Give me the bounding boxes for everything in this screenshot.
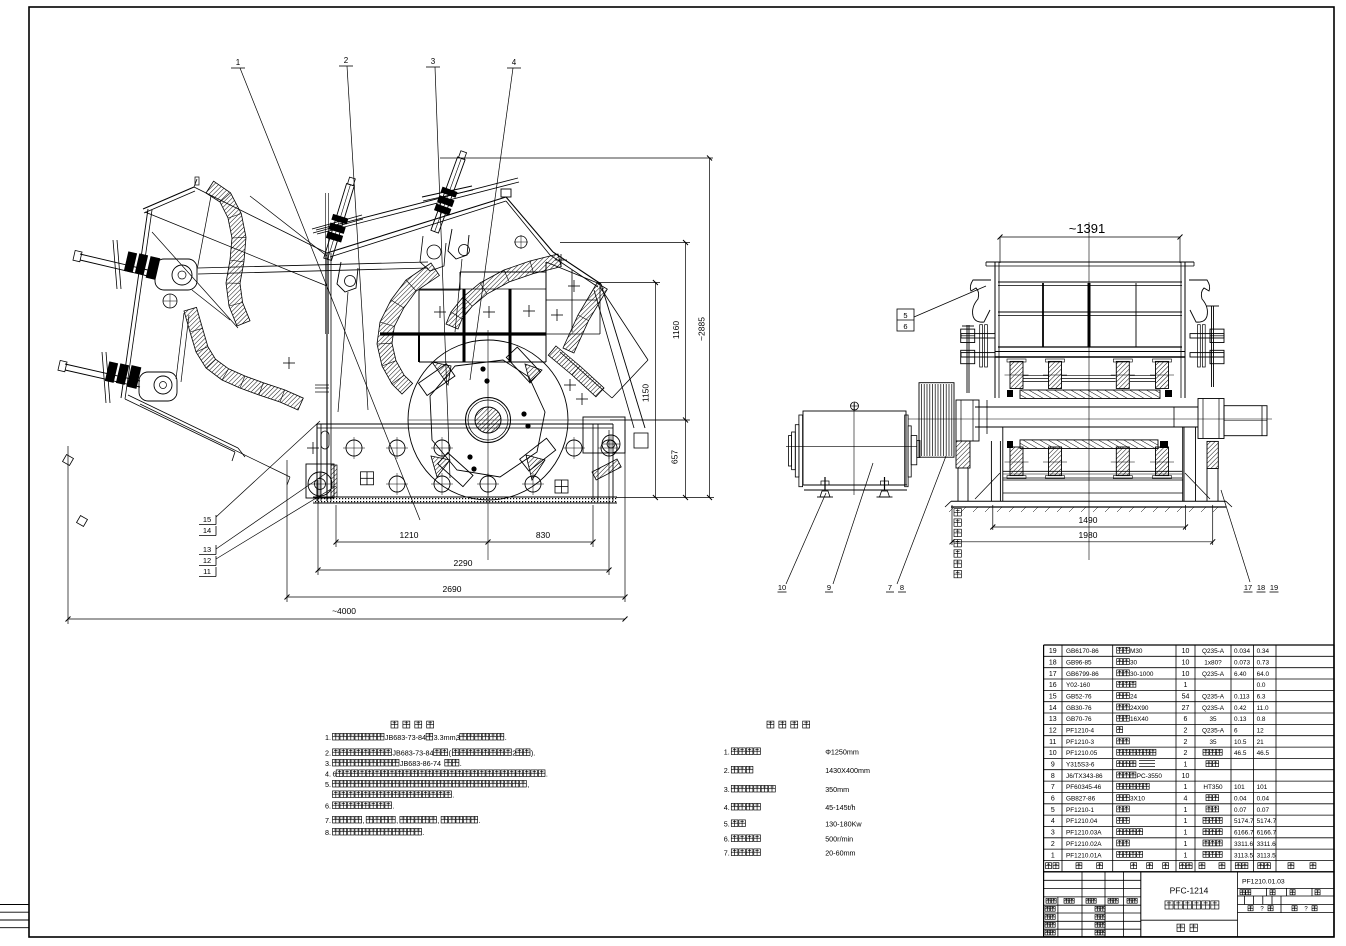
svg-text:500r/min: 500r/min: [825, 835, 853, 844]
svg-text:1: 1: [1184, 807, 1188, 814]
svg-text:19: 19: [1270, 583, 1278, 592]
svg-text:0.07: 0.07: [1257, 807, 1270, 814]
svg-text:2290: 2290: [454, 558, 473, 568]
svg-text:Q235-A: Q235-A: [1202, 648, 1225, 655]
svg-text:16X40: 16X40: [1130, 716, 1149, 723]
svg-text:Q235-A: Q235-A: [1202, 728, 1225, 735]
svg-text:1150: 1150: [641, 384, 651, 403]
svg-text:130-180Kw: 130-180Kw: [825, 820, 862, 829]
svg-text:PF1210.04: PF1210.04: [1066, 818, 1098, 825]
svg-text:,: ,: [527, 780, 529, 789]
svg-text:1430X400mm: 1430X400mm: [825, 766, 870, 775]
svg-text:45-145t/h: 45-145t/h: [825, 803, 855, 812]
svg-text:3311.6: 3311.6: [1234, 841, 1254, 848]
svg-text:5174.7: 5174.7: [1234, 818, 1254, 825]
svg-text:PF1210.03A: PF1210.03A: [1066, 830, 1102, 837]
svg-text:101: 101: [1257, 784, 1268, 791]
svg-text:0.073: 0.073: [1234, 660, 1250, 667]
svg-text:10.5: 10.5: [1234, 739, 1247, 746]
svg-text:8: 8: [1051, 773, 1055, 780]
svg-text:1: 1: [1184, 762, 1188, 769]
svg-text:7.: 7.: [325, 816, 331, 825]
svg-text:14: 14: [1049, 705, 1057, 712]
svg-text:GB6799-86: GB6799-86: [1066, 671, 1099, 678]
svg-text:Y02-160: Y02-160: [1066, 682, 1091, 689]
svg-text:64.0: 64.0: [1257, 671, 1270, 678]
svg-text:2690: 2690: [443, 584, 462, 594]
svg-text:0.04: 0.04: [1234, 796, 1247, 803]
svg-text:15: 15: [1049, 694, 1057, 701]
svg-text:830: 830: [536, 530, 550, 540]
svg-text:1: 1: [1184, 784, 1188, 791]
svg-text:10: 10: [778, 583, 786, 592]
svg-text:5174.7: 5174.7: [1257, 818, 1277, 825]
svg-text:2.: 2.: [325, 749, 331, 758]
svg-text:PF1210-4: PF1210-4: [1066, 728, 1095, 735]
svg-text:3X10: 3X10: [1130, 796, 1145, 803]
svg-text:2: 2: [344, 56, 349, 65]
svg-text:6.: 6.: [724, 835, 730, 844]
svg-text:46.5: 46.5: [1257, 750, 1270, 757]
svg-text:JB683-73-84: JB683-73-84: [385, 733, 426, 742]
svg-text:PF1210.01.03: PF1210.01.03: [1242, 879, 1285, 886]
svg-text:3.: 3.: [724, 785, 730, 794]
svg-text:0.73: 0.73: [1257, 660, 1270, 667]
svg-text:54: 54: [1182, 694, 1190, 701]
svg-text:1: 1: [1184, 852, 1188, 859]
svg-text:4: 4: [512, 58, 517, 67]
svg-text:0.0: 0.0: [1257, 682, 1266, 689]
svg-text:1490: 1490: [1079, 515, 1098, 525]
svg-text:PF1210-1: PF1210-1: [1066, 807, 1095, 814]
svg-text:14: 14: [203, 526, 211, 535]
svg-text:0.07: 0.07: [1234, 807, 1247, 814]
svg-text:101: 101: [1234, 784, 1245, 791]
svg-text:3: 3: [1051, 830, 1055, 837]
svg-text:PF60345-46: PF60345-46: [1066, 784, 1102, 791]
svg-text:6166.7: 6166.7: [1234, 830, 1254, 837]
svg-text:1: 1: [236, 58, 241, 67]
svg-text:4: 4: [1051, 818, 1055, 825]
svg-text:657: 657: [670, 450, 680, 464]
svg-text:2: 2: [1184, 728, 1188, 735]
svg-text:,: ,: [437, 816, 439, 825]
svg-text:4.: 4.: [325, 770, 331, 779]
svg-text:27: 27: [1182, 705, 1190, 712]
svg-text:1: 1: [1184, 841, 1188, 848]
svg-text:1: 1: [1184, 830, 1188, 837]
svg-text:1: 1: [1184, 682, 1188, 689]
svg-text:46.5: 46.5: [1234, 750, 1247, 757]
svg-text:6.40: 6.40: [1234, 671, 1247, 678]
svg-text:5: 5: [1051, 807, 1055, 814]
svg-text:2: 2: [1184, 739, 1188, 746]
svg-text:4.: 4.: [724, 803, 730, 812]
svg-text:0.42: 0.42: [1234, 705, 1247, 712]
svg-text:1x80?: 1x80?: [1204, 660, 1222, 667]
svg-text:GB827-86: GB827-86: [1066, 796, 1096, 803]
svg-text:7: 7: [1051, 784, 1055, 791]
svg-text:6: 6: [1184, 716, 1188, 723]
svg-text:3: 3: [456, 733, 460, 742]
svg-text:).: ).: [531, 749, 535, 758]
svg-text:1160: 1160: [671, 321, 681, 340]
svg-text:24X90: 24X90: [1130, 705, 1149, 712]
svg-text:16: 16: [1049, 682, 1057, 689]
svg-text:PF1210.05: PF1210.05: [1066, 750, 1098, 757]
svg-text:1: 1: [1184, 818, 1188, 825]
svg-text:11: 11: [203, 567, 211, 576]
svg-text:Y315S3-6: Y315S3-6: [1066, 762, 1095, 769]
svg-text:~2885: ~2885: [697, 317, 707, 341]
svg-text:5: 5: [903, 311, 907, 320]
svg-text:6: 6: [1051, 796, 1055, 803]
svg-text:10: 10: [1182, 773, 1190, 780]
svg-text:10: 10: [1182, 660, 1190, 667]
svg-text:PC-3550: PC-3550: [1137, 773, 1163, 780]
svg-text:JB683-86-74: JB683-86-74: [400, 759, 441, 768]
svg-text:PF1210.02A: PF1210.02A: [1066, 841, 1102, 848]
svg-text:.: .: [392, 802, 394, 811]
svg-text:Φ1250mm: Φ1250mm: [825, 748, 859, 757]
svg-text:1980: 1980: [1079, 530, 1098, 540]
svg-text:8.: 8.: [325, 828, 331, 837]
svg-text:7.: 7.: [724, 849, 730, 858]
svg-text:J6/TX343-86: J6/TX343-86: [1066, 773, 1103, 780]
svg-text:30-1000: 30-1000: [1130, 671, 1154, 678]
svg-text:10: 10: [1182, 648, 1190, 655]
svg-text:0.113: 0.113: [1234, 694, 1250, 701]
svg-text:.: .: [460, 759, 462, 768]
svg-text:1210: 1210: [400, 530, 419, 540]
svg-text:18: 18: [1257, 583, 1265, 592]
svg-text:3.: 3.: [325, 759, 331, 768]
svg-text:6.: 6.: [325, 802, 331, 811]
svg-text:GB6170-86: GB6170-86: [1066, 648, 1099, 655]
svg-text:0.13: 0.13: [1234, 716, 1247, 723]
svg-text:.: .: [452, 791, 454, 800]
svg-text:17: 17: [1049, 671, 1057, 678]
svg-text:2: 2: [1184, 750, 1188, 757]
svg-text:3311.6: 3311.6: [1257, 841, 1277, 848]
svg-text:0.8: 0.8: [1257, 716, 1266, 723]
svg-text:GB70-76: GB70-76: [1066, 716, 1092, 723]
svg-text:35: 35: [1209, 716, 1217, 723]
svg-text:PF1210.01A: PF1210.01A: [1066, 852, 1102, 859]
svg-text:3: 3: [431, 57, 436, 66]
svg-text:~1391: ~1391: [1069, 221, 1106, 236]
svg-text:6.3: 6.3: [1257, 694, 1266, 701]
svg-text:Q235-A: Q235-A: [1202, 705, 1225, 712]
svg-text:~4000: ~4000: [332, 606, 356, 616]
svg-text:Q235-A: Q235-A: [1202, 694, 1225, 701]
svg-text:2: 2: [1051, 841, 1055, 848]
svg-text:12: 12: [203, 556, 211, 565]
svg-text:18: 18: [1049, 660, 1057, 667]
svg-text:35: 35: [1209, 739, 1217, 746]
svg-text:13: 13: [1049, 716, 1057, 723]
svg-text:GB30-76: GB30-76: [1066, 705, 1092, 712]
svg-text:12: 12: [1049, 728, 1057, 735]
svg-text:0.34: 0.34: [1257, 648, 1270, 655]
svg-text:3.3mm,: 3.3mm,: [434, 733, 458, 742]
svg-text:4: 4: [1184, 796, 1188, 803]
svg-text:.: .: [505, 733, 507, 742]
svg-text:12: 12: [1257, 728, 1265, 735]
svg-text:.: .: [422, 828, 424, 837]
svg-text:6166.7: 6166.7: [1257, 830, 1277, 837]
svg-text:13: 13: [203, 545, 211, 554]
svg-text:0.034: 0.034: [1234, 648, 1250, 655]
svg-text:24: 24: [1130, 694, 1138, 701]
svg-text:19: 19: [1049, 648, 1057, 655]
svg-text:1.: 1.: [325, 733, 331, 742]
svg-text:17: 17: [1244, 583, 1252, 592]
svg-text:7: 7: [888, 583, 892, 592]
svg-text:0.04: 0.04: [1257, 796, 1270, 803]
svg-text:Q235-A: Q235-A: [1202, 671, 1225, 678]
svg-text:JB683-73-84: JB683-73-84: [392, 749, 433, 758]
svg-text:8: 8: [900, 583, 904, 592]
svg-text:10: 10: [1049, 750, 1057, 757]
svg-text:3113.5: 3113.5: [1257, 852, 1277, 859]
svg-text:GB52-76: GB52-76: [1066, 694, 1092, 701]
svg-text:30: 30: [1130, 660, 1138, 667]
svg-text:GB96-85: GB96-85: [1066, 660, 1092, 667]
svg-text:.: .: [546, 770, 548, 779]
svg-text:15: 15: [203, 515, 211, 524]
svg-text:11.0: 11.0: [1257, 705, 1269, 712]
svg-text:350mm: 350mm: [825, 785, 849, 794]
svg-text:M30: M30: [1130, 648, 1143, 655]
svg-text:1: 1: [1051, 852, 1055, 859]
svg-text:PFC-1214: PFC-1214: [1170, 886, 1209, 896]
svg-text:.: .: [479, 816, 481, 825]
svg-text:9: 9: [1051, 762, 1055, 769]
svg-text:9: 9: [827, 583, 831, 592]
svg-text:11: 11: [1049, 739, 1056, 746]
svg-text:2.: 2.: [724, 766, 730, 775]
svg-text:10: 10: [1182, 671, 1190, 678]
svg-text:HT350: HT350: [1203, 784, 1223, 791]
svg-text:5.: 5.: [325, 780, 331, 789]
svg-text:20-60mm: 20-60mm: [825, 849, 855, 858]
svg-text:,: ,: [396, 816, 398, 825]
svg-text:6: 6: [903, 322, 907, 331]
svg-text:1.: 1.: [724, 748, 730, 757]
svg-text:21: 21: [1257, 739, 1265, 746]
svg-text:PF1210-3: PF1210-3: [1066, 739, 1095, 746]
svg-text:3113.5: 3113.5: [1234, 852, 1254, 859]
svg-text:,: ,: [362, 816, 364, 825]
svg-text:5.: 5.: [724, 820, 730, 829]
svg-text:6: 6: [1234, 728, 1238, 735]
